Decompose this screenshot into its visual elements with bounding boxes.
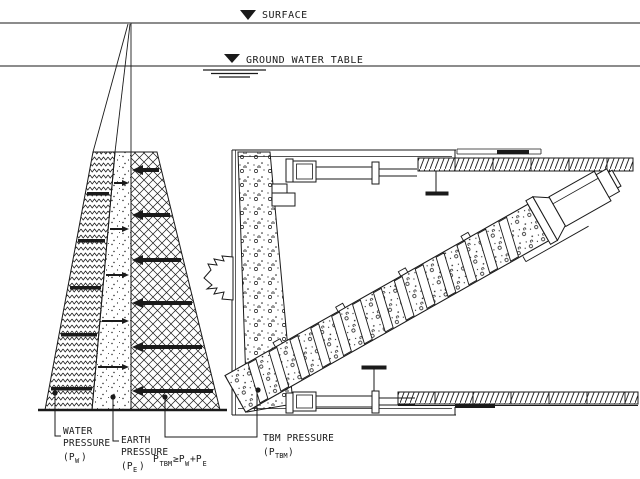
svg-text:): )	[81, 452, 87, 463]
water-pressure-line1: WATER	[63, 426, 93, 437]
ground-water-table-datum: GROUND WATER TABLE	[0, 54, 640, 77]
earth-pressure-line1: EARTH	[121, 435, 151, 446]
gwt-marker-icon	[224, 54, 240, 63]
engineering-drawing: SURFACE GROUND WATER TABLE	[0, 0, 640, 479]
svg-text:E: E	[133, 466, 137, 474]
label-water-pressure: WATER PRESSURE (P W )	[63, 426, 110, 465]
muck-flow-arrow-icon	[204, 256, 233, 300]
surface-datum: SURFACE	[0, 10, 640, 23]
screw-motor	[549, 163, 625, 226]
svg-text:TBM: TBM	[275, 452, 288, 460]
water-table-symbol	[203, 70, 266, 77]
svg-text:W: W	[75, 457, 80, 465]
segment-lining-bottom	[398, 392, 638, 408]
svg-text:+P: +P	[190, 454, 202, 465]
label-earth-pressure: EARTH PRESSURE (P E )	[121, 435, 168, 474]
surface-marker-icon	[240, 10, 256, 20]
svg-text:): )	[288, 447, 294, 458]
pressure-triangle	[38, 23, 227, 410]
segment-lining-top	[418, 149, 633, 171]
tbm-pressure-line1: TBM PRESSURE	[263, 433, 334, 444]
apex-construction-lines	[93, 23, 131, 152]
surface-label: SURFACE	[262, 10, 308, 21]
svg-text:TBM: TBM	[160, 460, 173, 468]
svg-text:P: P	[153, 454, 159, 465]
svg-text:(P: (P	[121, 461, 133, 472]
svg-text:≥P: ≥P	[173, 454, 185, 465]
water-pressure-line2: PRESSURE	[63, 438, 110, 449]
svg-text:(P: (P	[63, 452, 75, 463]
tbm-leader-dot-chamber	[255, 387, 260, 392]
svg-text:E: E	[203, 460, 207, 468]
tbm-pressure-region	[131, 152, 220, 410]
diagram-canvas: SURFACE GROUND WATER TABLE	[0, 0, 640, 479]
earth-pressure-line2: PRESSURE	[121, 447, 168, 458]
svg-text:(P: (P	[263, 447, 275, 458]
label-tbm-pressure: TBM PRESSURE (P TBM )	[263, 433, 334, 460]
gwt-label: GROUND WATER TABLE	[246, 55, 363, 66]
svg-text:): )	[139, 461, 145, 472]
